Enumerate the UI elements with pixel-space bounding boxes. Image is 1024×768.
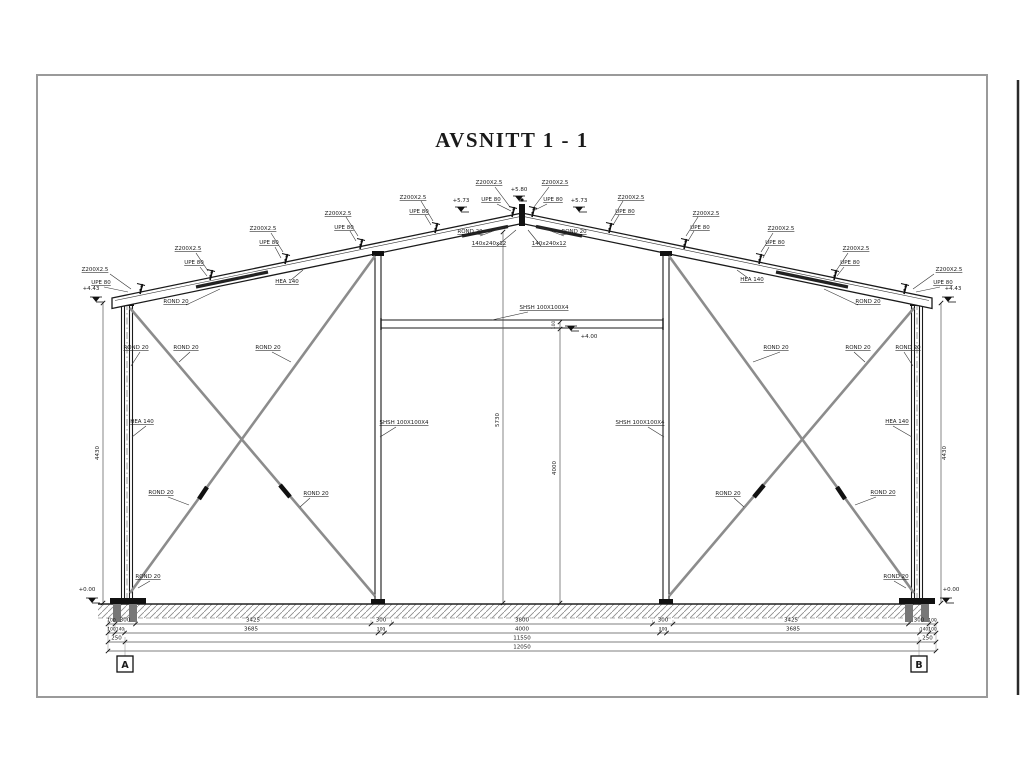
dim-text: 100	[107, 627, 116, 633]
column-profile-label: HEA 140	[885, 419, 909, 425]
purlin-label: Z200X2.5	[618, 195, 645, 201]
dim-text: 300	[914, 618, 925, 624]
brace-label: ROND 20	[457, 229, 483, 235]
purlin-profile-label: UPE 80	[334, 225, 354, 231]
elevation-eave-right: +4.43	[945, 286, 962, 292]
brace-label: ROND 20	[255, 345, 281, 351]
elevation-ground-right: +0.00	[943, 587, 960, 593]
anchor-block	[905, 604, 913, 622]
dim-text: 3425	[246, 618, 260, 624]
dim-text: 140	[920, 627, 929, 633]
purlin-profile-label: UPE 80	[409, 209, 429, 215]
dim-column-height-right: 4430	[942, 446, 948, 460]
brace-label: ROND 20	[173, 345, 199, 351]
purlin-label: Z200X2.5	[476, 180, 503, 186]
dim-total: 12050	[513, 645, 531, 651]
brace-label: ROND 20	[123, 345, 149, 351]
elevation-door-top: +4.00	[581, 334, 598, 340]
dim-text: 3685	[244, 627, 258, 633]
dim-column-height-left: 4430	[95, 446, 101, 460]
column-profile-label: HEA 140	[130, 419, 154, 425]
brace-label: ROND 20	[163, 299, 189, 305]
brace-label: ROND 20	[715, 491, 741, 497]
post-profile-label: SHSH 100X100X4	[379, 420, 429, 426]
brace-label: ROND 20	[561, 229, 587, 235]
base-plate	[110, 598, 146, 604]
purlin-profile-label: UPE 80	[481, 197, 501, 203]
elevation-ridge-side-left: +5.73	[453, 198, 470, 204]
apex-plate-label: 140x240x12	[472, 241, 507, 247]
elevation-ridge: +5.80	[511, 187, 528, 193]
dim-text: 250	[922, 636, 933, 642]
brace-label: ROND 20	[895, 345, 921, 351]
purlin-profile-label: UPE 80	[259, 240, 279, 246]
brace-label: ROND 20	[870, 490, 896, 496]
purlin-label: Z200X2.5	[250, 226, 277, 232]
purlin-profile-label: UPE 80	[690, 225, 710, 231]
dim-text: 11550	[513, 636, 531, 642]
dim-text: 3800	[515, 618, 529, 624]
elevation-ridge-side-right: +5.73	[571, 198, 588, 204]
brace-label: ROND 20	[135, 574, 161, 580]
purlin-profile-label: UPE 80	[933, 280, 953, 286]
purlin-label: Z200X2.5	[400, 195, 427, 201]
dim-text: 300	[120, 618, 131, 624]
dim-text: 3425	[784, 618, 798, 624]
brace-label: ROND 20	[148, 490, 174, 496]
purlin-label: Z200X2.5	[82, 267, 109, 273]
rafter-profile-label: HEA 140	[740, 277, 764, 283]
dim-ridge-height: 5730	[495, 413, 501, 427]
purlin-profile-label: UPE 80	[615, 209, 635, 215]
dim-text: 3685	[786, 627, 800, 633]
lintel-profile-label: SHSH 100X100X4	[519, 305, 569, 311]
dim-text: 100	[928, 627, 937, 633]
purlin-label: Z200X2.5	[325, 211, 352, 217]
section-drawing: AVSNITT 1 - 1	[0, 0, 1024, 768]
brace-label: ROND 20	[303, 491, 329, 497]
apex-plate-label: 140x240x12	[532, 241, 567, 247]
grid-bubble-left: A	[121, 660, 129, 671]
rafter-profile-label: HEA 140	[275, 279, 299, 285]
ridge-connection	[519, 204, 525, 226]
dim-text: 100	[377, 627, 386, 633]
dim-text: 250	[111, 636, 122, 642]
purlin-label: Z200X2.5	[936, 267, 963, 273]
dim-text: 300	[658, 618, 669, 624]
dim-text: 100	[659, 627, 668, 633]
dim-lintel-offset: 100	[551, 321, 557, 330]
dim-text: 140	[116, 627, 125, 633]
dim-text: 4000	[515, 627, 529, 633]
brace-label: ROND 20	[845, 345, 871, 351]
brace-label: ROND 20	[763, 345, 789, 351]
purlin-label: Z200X2.5	[693, 211, 720, 217]
elevation-eave-left: +4.43	[83, 286, 100, 292]
purlin-label: Z200X2.5	[843, 246, 870, 252]
purlin-profile-label: UPE 80	[91, 280, 111, 286]
brace-label: ROND 20	[883, 574, 909, 580]
purlin-label: Z200X2.5	[542, 180, 569, 186]
purlin-label: Z200X2.5	[175, 246, 202, 252]
purlin-profile-label: UPE 80	[840, 260, 860, 266]
elevation-ground-left: +0.00	[79, 587, 96, 593]
dim-text: 300	[376, 618, 387, 624]
base-plate	[899, 598, 935, 604]
dim-door-height: 4000	[552, 461, 558, 475]
dim-text: 100	[107, 618, 116, 624]
dim-text: 100	[928, 618, 937, 624]
purlin-profile-label: UPE 80	[543, 197, 563, 203]
drawing-title: AVSNITT 1 - 1	[435, 128, 589, 152]
grid-bubble-right: B	[915, 660, 922, 671]
post-profile-label: SHSH 100X100X4	[615, 420, 665, 426]
brace-label: ROND 20	[855, 299, 881, 305]
purlin-label: Z200X2.5	[768, 226, 795, 232]
purlin-profile-label: UPE 80	[184, 260, 204, 266]
purlin-profile-label: UPE 80	[765, 240, 785, 246]
